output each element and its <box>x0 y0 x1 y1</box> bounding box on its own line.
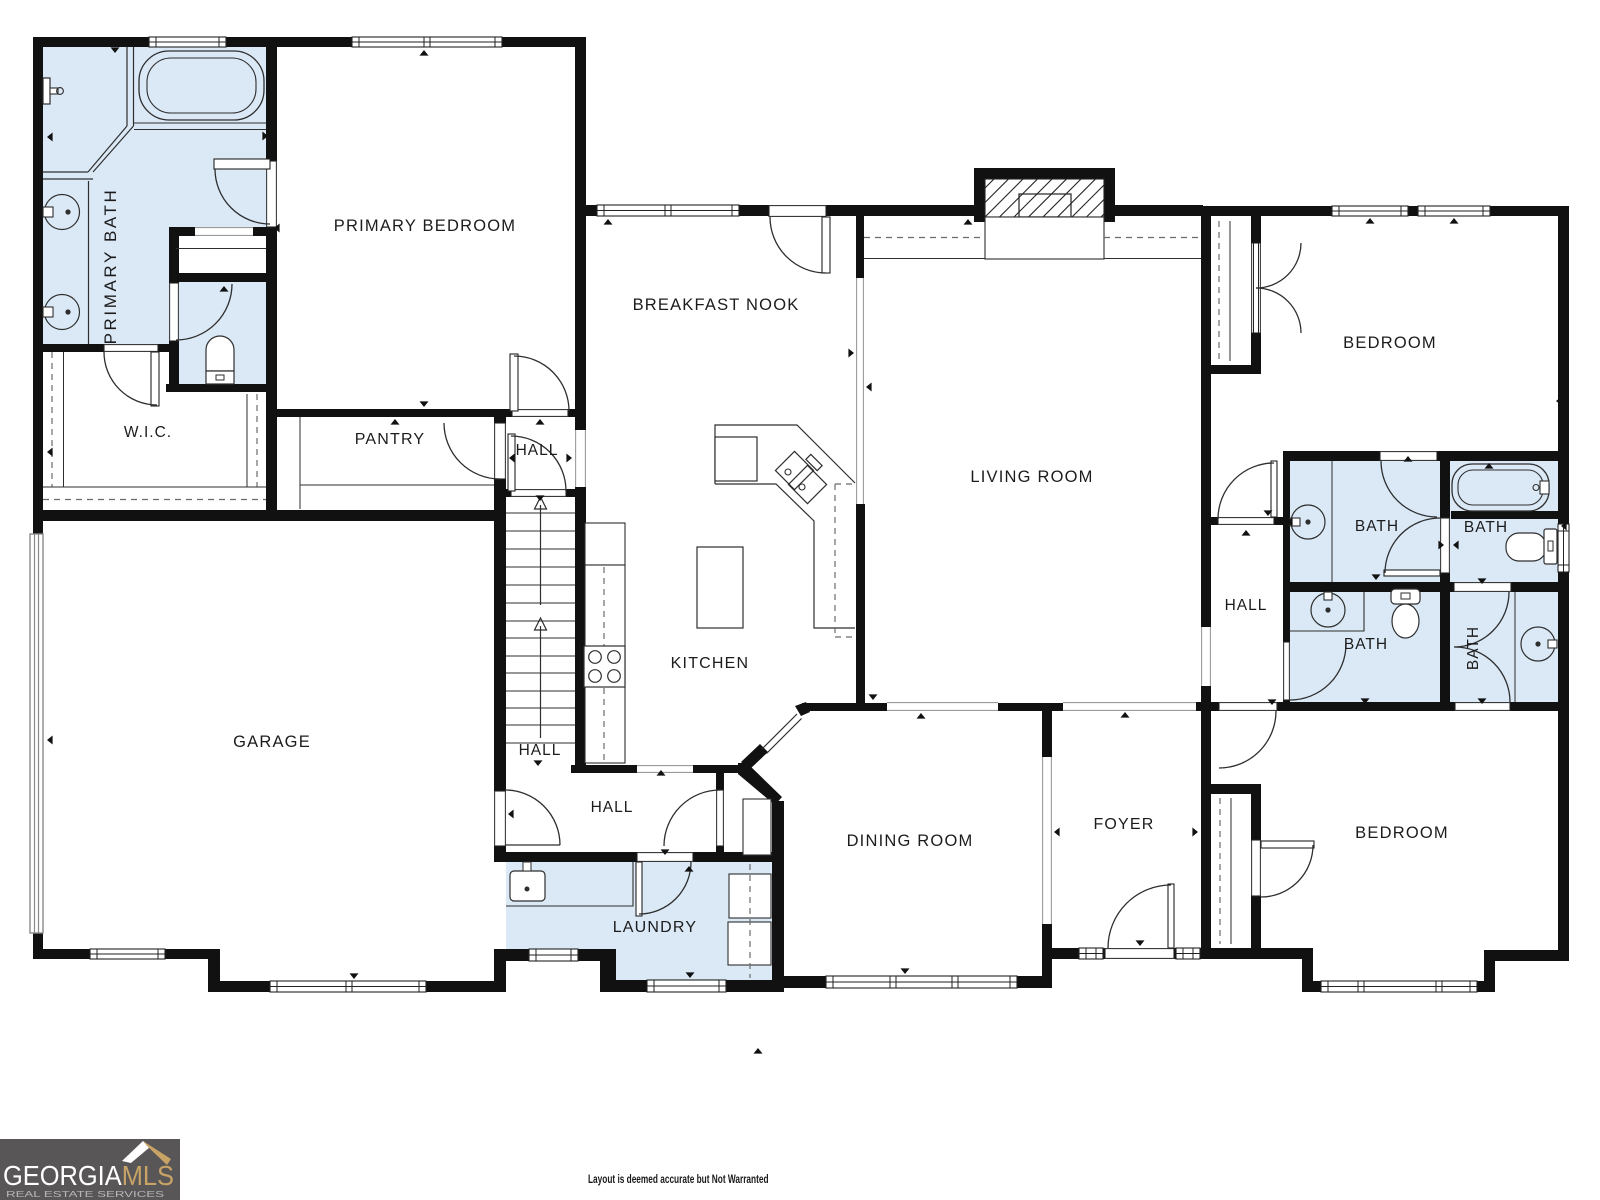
svg-text:LIVING ROOM: LIVING ROOM <box>970 468 1093 486</box>
svg-text:BATH: BATH <box>1344 636 1388 653</box>
svg-text:REAL ESTATE SERVICES: REAL ESTATE SERVICES <box>6 1190 165 1199</box>
svg-text:HALL: HALL <box>591 799 634 816</box>
svg-text:BATH: BATH <box>1464 519 1508 536</box>
svg-text:KITCHEN: KITCHEN <box>671 655 750 672</box>
svg-text:FOYER: FOYER <box>1093 816 1154 833</box>
svg-text:BEDROOM: BEDROOM <box>1355 824 1449 842</box>
svg-text:LAUNDRY: LAUNDRY <box>613 919 698 936</box>
svg-text:BATH: BATH <box>1465 626 1482 670</box>
svg-text:DINING ROOM: DINING ROOM <box>847 832 974 850</box>
svg-text:HALL: HALL <box>516 442 559 459</box>
svg-text:GARAGE: GARAGE <box>233 733 311 751</box>
svg-text:PRIMARY BEDROOM: PRIMARY BEDROOM <box>334 217 516 235</box>
svg-text:BREAKFAST NOOK: BREAKFAST NOOK <box>633 296 800 314</box>
svg-text:GEORGIAMLS: GEORGIAMLS <box>3 1160 174 1191</box>
svg-text:HALL: HALL <box>519 742 562 759</box>
svg-text:W.I.C.: W.I.C. <box>124 424 172 441</box>
svg-text:PANTRY: PANTRY <box>355 431 426 448</box>
svg-text:BATH: BATH <box>1355 518 1399 535</box>
svg-text:HALL: HALL <box>1225 597 1268 614</box>
svg-text:BEDROOM: BEDROOM <box>1343 334 1437 352</box>
svg-text:PRIMARY BATH: PRIMARY BATH <box>101 188 120 345</box>
